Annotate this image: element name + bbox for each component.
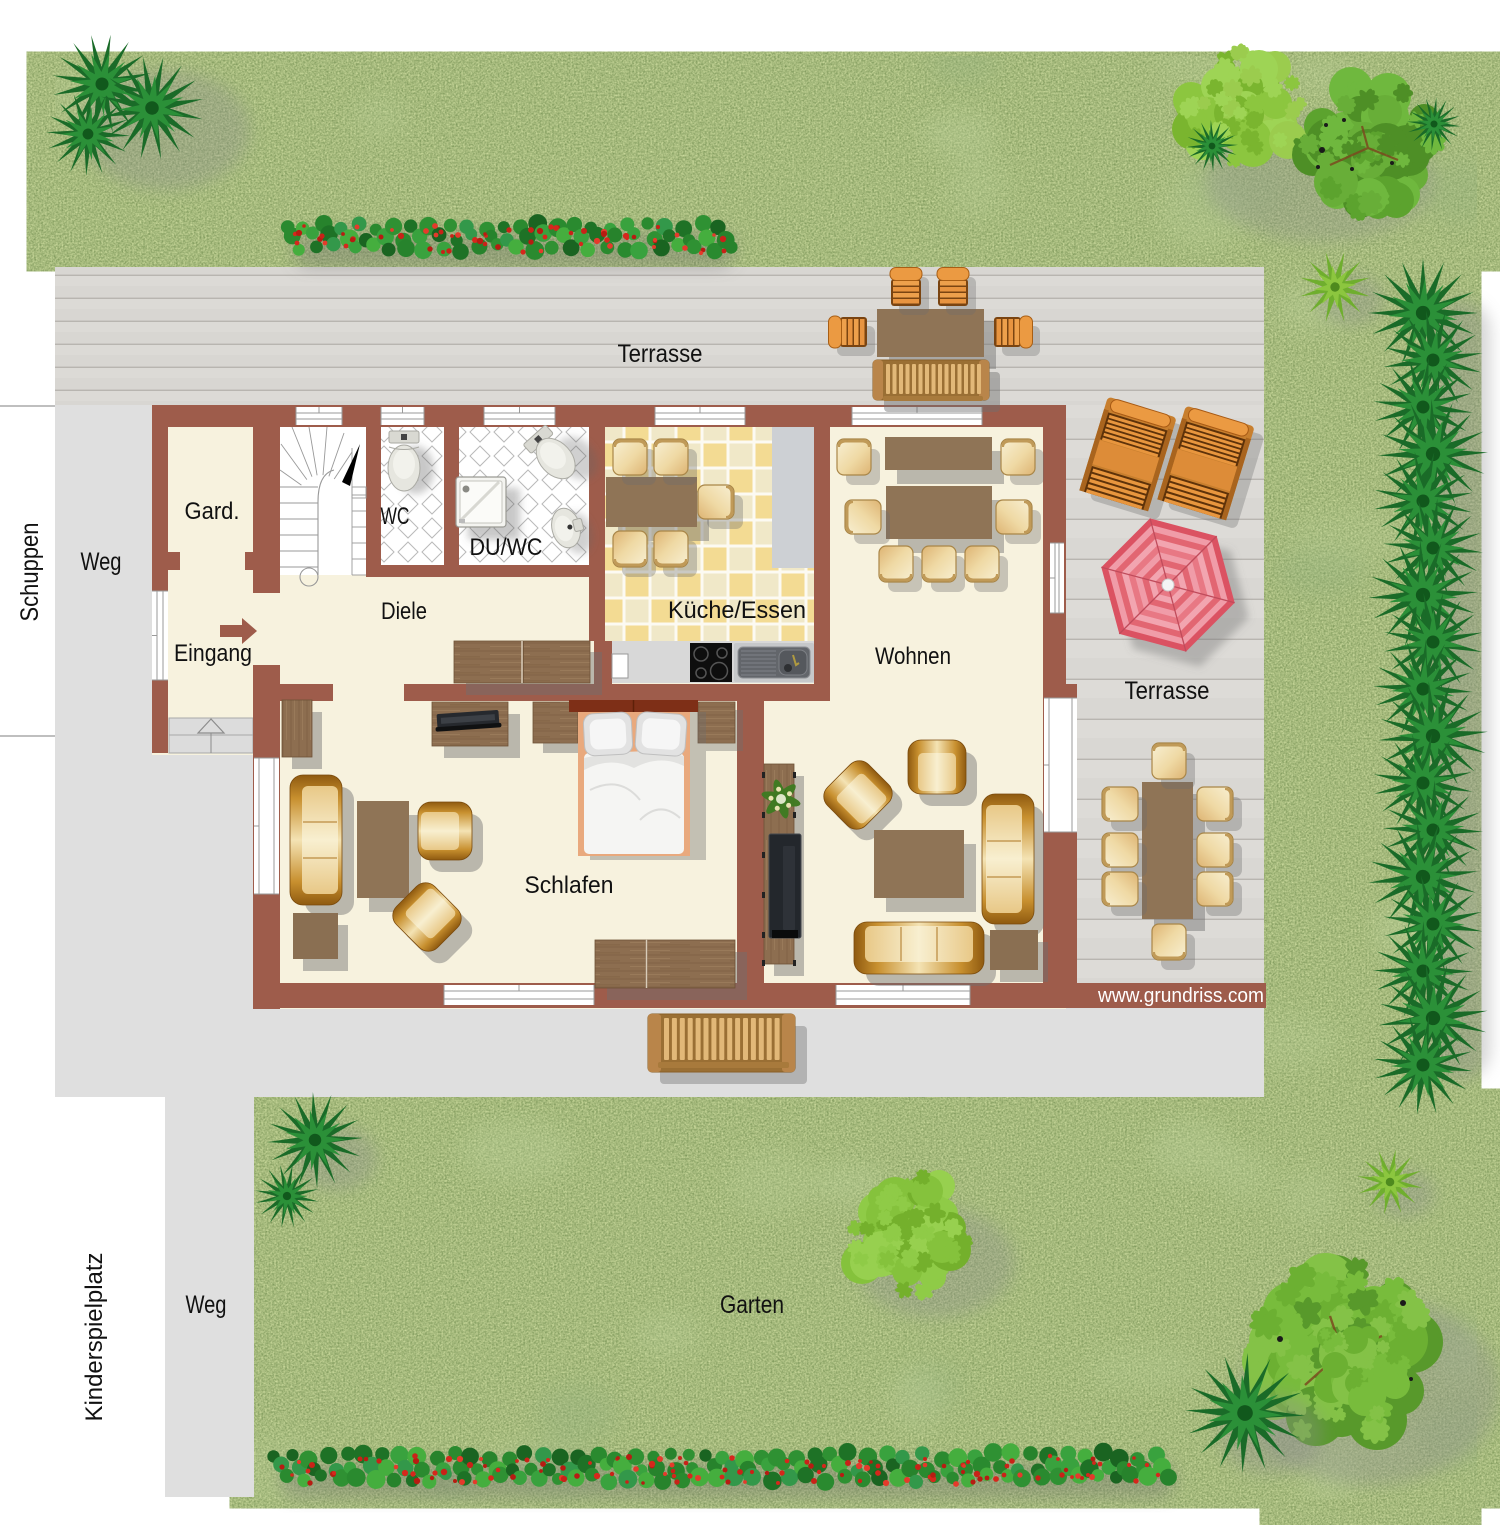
svg-text:Schuppen: Schuppen <box>16 523 44 622</box>
svg-text:Garten: Garten <box>720 1291 784 1319</box>
svg-text:Schlafen: Schlafen <box>525 872 614 899</box>
svg-text:Kinderspielplatz: Kinderspielplatz <box>81 1253 108 1422</box>
svg-text:Terrasse: Terrasse <box>1125 677 1210 705</box>
svg-text:Gard.: Gard. <box>185 498 240 525</box>
svg-text:Küche/Essen: Küche/Essen <box>668 597 806 624</box>
svg-text:Wohnen: Wohnen <box>875 643 951 670</box>
svg-text:DU/WC: DU/WC <box>470 534 543 561</box>
svg-text:Weg: Weg <box>186 1291 227 1319</box>
svg-text:Terrasse: Terrasse <box>618 340 703 368</box>
svg-text:Weg: Weg <box>81 548 122 576</box>
svg-text:Diele: Diele <box>381 598 427 625</box>
svg-text:Eingang: Eingang <box>174 640 252 667</box>
svg-text:www.grundriss.com: www.grundriss.com <box>1097 985 1264 1007</box>
svg-text:WC: WC <box>381 503 410 530</box>
